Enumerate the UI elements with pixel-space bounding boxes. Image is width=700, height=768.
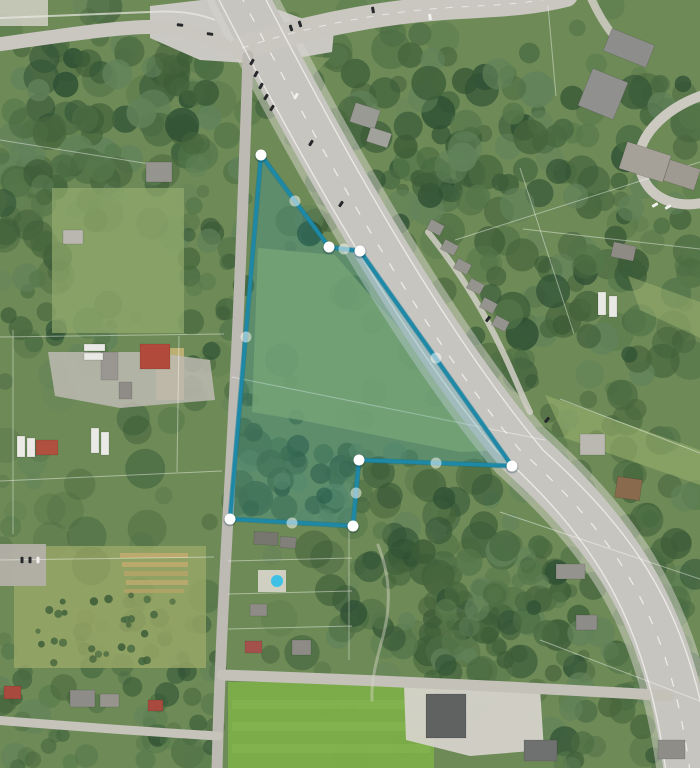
boundary-vertex-handle[interactable] bbox=[355, 246, 366, 257]
building-roof bbox=[70, 690, 95, 707]
boundary-vertex-handle[interactable] bbox=[348, 521, 359, 532]
boundary-midpoint-handle[interactable] bbox=[351, 488, 362, 499]
pool-layer bbox=[258, 570, 286, 592]
building-roof bbox=[148, 700, 163, 711]
building-roof bbox=[17, 436, 25, 457]
sports-field-stripe-2 bbox=[232, 722, 430, 731]
sports-field-stripe-3 bbox=[232, 744, 430, 753]
garden-row-5 bbox=[124, 589, 184, 593]
building-roof bbox=[250, 604, 267, 616]
building-roof bbox=[140, 344, 170, 369]
left-parking-lot bbox=[0, 544, 46, 586]
boundary-vertex-handle[interactable] bbox=[507, 461, 518, 472]
corner-shoulder bbox=[0, 0, 48, 26]
aerial-map-canvas[interactable] bbox=[0, 0, 700, 768]
building-roof bbox=[63, 230, 83, 244]
building-roof bbox=[100, 694, 119, 707]
boundary-vertex-handle[interactable] bbox=[256, 150, 267, 161]
building-roof bbox=[91, 428, 99, 453]
building-roof bbox=[556, 564, 585, 579]
garden-row-4 bbox=[126, 580, 188, 585]
building-roof bbox=[280, 537, 297, 549]
garden-row-3 bbox=[124, 571, 188, 576]
vehicle bbox=[37, 557, 40, 564]
boundary-midpoint-handle[interactable] bbox=[290, 196, 301, 207]
building-roof bbox=[254, 531, 279, 545]
garden-row-2 bbox=[122, 562, 188, 567]
building-roof bbox=[576, 615, 597, 630]
boundary-midpoint-handle[interactable] bbox=[287, 518, 298, 529]
building-roof bbox=[609, 296, 617, 317]
building-roof bbox=[84, 353, 103, 360]
building-roof bbox=[245, 641, 262, 653]
building-roof bbox=[615, 476, 643, 500]
building-roof bbox=[146, 162, 172, 182]
swimming-pool bbox=[271, 575, 283, 587]
building-roof bbox=[101, 432, 109, 455]
boundary-midpoint-handle[interactable] bbox=[431, 353, 442, 364]
building-roof bbox=[524, 740, 557, 761]
building-roof bbox=[84, 344, 105, 351]
boundary-vertex-handle[interactable] bbox=[225, 514, 236, 525]
building-roof bbox=[101, 352, 118, 380]
building-roof bbox=[292, 640, 311, 655]
vehicle bbox=[177, 23, 184, 27]
building-roof bbox=[658, 740, 685, 759]
aerial-map-viewport[interactable] bbox=[0, 0, 700, 768]
vehicle bbox=[29, 557, 32, 564]
boundary-vertex-handle[interactable] bbox=[354, 455, 365, 466]
building-roof bbox=[36, 440, 58, 455]
building-roof bbox=[27, 438, 35, 457]
vehicle bbox=[21, 557, 24, 564]
building-roof bbox=[4, 686, 21, 699]
boundary-midpoint-handle[interactable] bbox=[431, 458, 442, 469]
building-roof bbox=[580, 434, 605, 455]
building-roof bbox=[598, 292, 606, 315]
building-roof bbox=[119, 382, 132, 399]
sports-field-stripe-1 bbox=[232, 700, 430, 709]
boundary-midpoint-handle[interactable] bbox=[241, 332, 252, 343]
building-roof bbox=[426, 694, 466, 738]
boundary-midpoint-handle[interactable] bbox=[339, 244, 350, 255]
boundary-vertex-handle[interactable] bbox=[324, 242, 335, 253]
left-pasture bbox=[52, 188, 184, 333]
